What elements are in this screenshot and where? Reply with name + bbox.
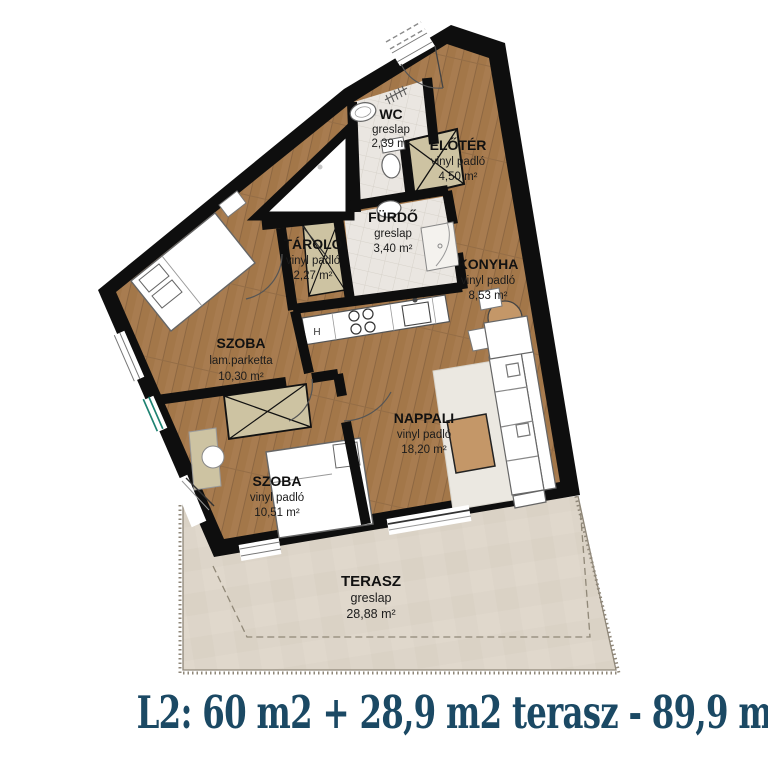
svg-text:3,40 m²: 3,40 m²: [374, 243, 413, 255]
svg-text:10,51 m²: 10,51 m²: [254, 507, 300, 519]
svg-text:NAPPALI: NAPPALI: [394, 410, 454, 426]
svg-text:greslap: greslap: [372, 124, 410, 136]
floor-plan-svg: H: [0, 0, 768, 768]
room-label-furdo: FÜRDŐ greslap 3,40 m²: [368, 208, 418, 255]
svg-text:2,27 m²: 2,27 m²: [294, 270, 333, 282]
svg-text:WC: WC: [379, 106, 402, 122]
svg-text:KONYHA: KONYHA: [458, 256, 519, 272]
svg-text:vinyl padló: vinyl padló: [250, 492, 304, 504]
plan-dot: [318, 165, 323, 170]
fridge-label: H: [313, 327, 320, 338]
apartment: H: [98, 22, 580, 561]
svg-text:lam.parketta: lam.parketta: [209, 355, 273, 367]
room-label-szoba-2: SZOBA vinyl padló 10,51 m²: [250, 473, 304, 519]
svg-text:vinyl padló: vinyl padló: [461, 275, 515, 287]
svg-text:vinyl padló: vinyl padló: [431, 156, 485, 168]
svg-text:SZOBA: SZOBA: [253, 473, 302, 489]
floor-plan-page: H: [0, 0, 768, 768]
svg-text:ELŐTÉR: ELŐTÉR: [430, 136, 487, 153]
svg-text:TÁROLÓ: TÁROLÓ: [283, 235, 342, 252]
price-caption-text: L2: 60 m2 + 28,9 m2 terasz - 89,9 millió: [137, 686, 768, 739]
svg-text:vinyl padló: vinyl padló: [397, 429, 451, 441]
shower: [421, 222, 459, 271]
svg-text:8,53 m²: 8,53 m²: [469, 290, 508, 302]
svg-text:2,39 m²: 2,39 m²: [372, 138, 411, 150]
svg-text:FÜRDŐ: FÜRDŐ: [368, 208, 418, 225]
svg-text:greslap: greslap: [374, 228, 412, 240]
svg-text:SZOBA: SZOBA: [217, 335, 266, 351]
room-label-szoba-1: SZOBA lam.parketta 10,30 m²: [209, 335, 273, 383]
svg-text:greslap: greslap: [351, 591, 392, 605]
svg-text:4,50 m²: 4,50 m²: [439, 171, 478, 183]
svg-text:28,88 m²: 28,88 m²: [346, 607, 395, 621]
svg-text:TERASZ: TERASZ: [341, 573, 401, 590]
price-caption: L2: 60 m2 + 28,9 m2 terasz - 89,9 millió: [0, 686, 768, 739]
svg-text:18,20 m²: 18,20 m²: [401, 444, 447, 456]
room-label-nappali: NAPPALI vinyl padló 18,20 m²: [394, 410, 454, 456]
svg-text:vinyl padló: vinyl padló: [286, 255, 340, 267]
svg-text:10,30 m²: 10,30 m²: [218, 371, 264, 383]
